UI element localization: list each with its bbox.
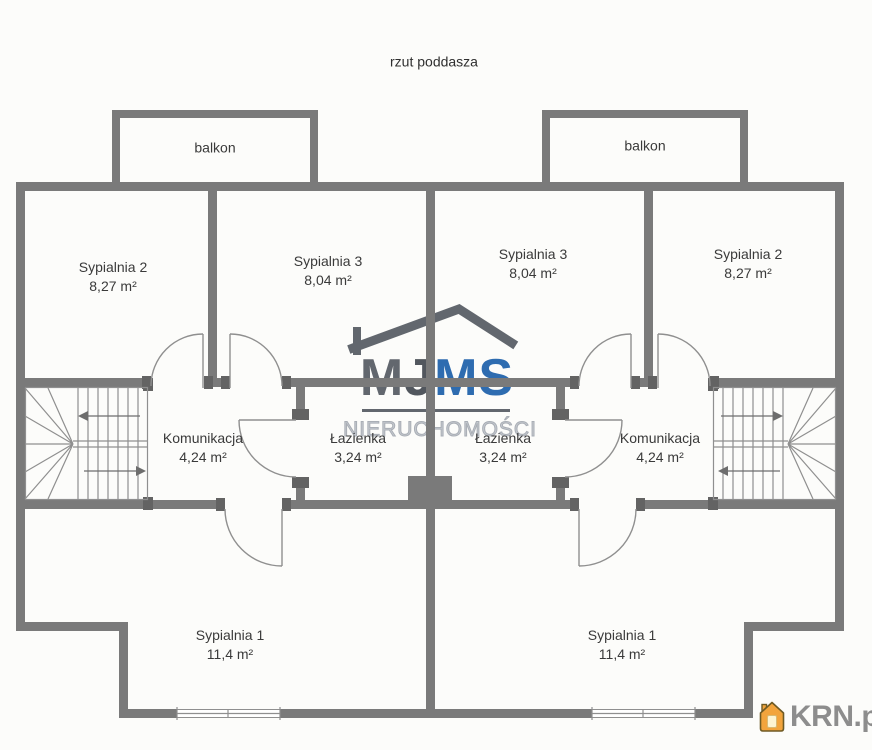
room-label-balcony-left: balkon bbox=[194, 139, 235, 158]
plan-title: rzut poddasza bbox=[390, 53, 478, 72]
wall bbox=[16, 182, 844, 191]
balcony-wall bbox=[740, 110, 748, 191]
room-name: Łazienka bbox=[475, 429, 531, 448]
room-name: Komunikacja bbox=[620, 429, 700, 448]
room-name: Sypialnia 3 bbox=[499, 245, 568, 264]
door-jamb bbox=[282, 498, 291, 511]
wall bbox=[644, 191, 653, 378]
wall bbox=[25, 378, 151, 387]
door-jamb bbox=[292, 409, 309, 420]
party-wall bbox=[426, 509, 435, 709]
wall bbox=[636, 500, 835, 509]
balcony-wall bbox=[112, 110, 120, 191]
wall bbox=[25, 500, 225, 509]
wall bbox=[282, 378, 426, 387]
door-jamb bbox=[636, 498, 645, 511]
door-jamb bbox=[708, 378, 718, 391]
staircase-left bbox=[25, 388, 148, 500]
room-name: Sypialnia 2 bbox=[714, 245, 783, 264]
room-label-bedroom1-left: Sypialnia 1 11,4 m² bbox=[196, 626, 265, 664]
door-jamb bbox=[570, 498, 579, 511]
balcony-wall bbox=[542, 110, 550, 191]
room-name: Komunikacja bbox=[163, 429, 243, 448]
room-label-bedroom2-left: Sypialnia 2 8,27 m² bbox=[79, 258, 148, 296]
room-label-hall-right: Komunikacja 4,24 m² bbox=[620, 429, 700, 467]
door-jamb bbox=[552, 477, 569, 488]
wall bbox=[119, 622, 128, 718]
balcony-wall bbox=[542, 110, 748, 118]
room-label-bedroom3-left: Sypialnia 3 8,04 m² bbox=[294, 252, 363, 290]
balcony-wall bbox=[310, 110, 318, 191]
door-jamb bbox=[708, 497, 718, 510]
room-name: Sypialnia 1 bbox=[588, 626, 657, 645]
room-label-bath-left: Łazienka 3,24 m² bbox=[330, 429, 386, 467]
krn-logo: KRN.pl bbox=[757, 700, 872, 734]
room-area: 11,4 m² bbox=[588, 645, 657, 664]
door-jamb bbox=[143, 378, 153, 391]
room-area: 8,27 m² bbox=[79, 277, 148, 296]
room-area: 3,24 m² bbox=[475, 448, 531, 467]
door-jamb bbox=[552, 409, 569, 420]
room-area: 8,04 m² bbox=[499, 264, 568, 283]
room-label-bath-right: Łazienka 3,24 m² bbox=[475, 429, 531, 467]
wall bbox=[710, 378, 835, 387]
wall bbox=[282, 500, 426, 509]
room-area: 3,24 m² bbox=[330, 448, 386, 467]
watermark-divider bbox=[362, 409, 510, 412]
room-area: 11,4 m² bbox=[196, 645, 265, 664]
room-area: 8,27 m² bbox=[714, 264, 783, 283]
room-name: Sypialnia 2 bbox=[79, 258, 148, 277]
room-label-hall-left: Komunikacja 4,24 m² bbox=[163, 429, 243, 467]
door-jamb bbox=[292, 477, 309, 488]
door-jamb bbox=[204, 376, 213, 389]
floor-plan: rzut poddasza MJMS NIERUCHOMOŚCI bbox=[0, 0, 872, 750]
party-wall bbox=[426, 191, 435, 478]
door-jamb bbox=[570, 376, 579, 389]
krn-logo-text: KRN.pl bbox=[790, 700, 872, 734]
wall bbox=[208, 191, 217, 378]
door-jamb bbox=[648, 376, 657, 389]
door-jamb bbox=[216, 498, 225, 511]
wall bbox=[835, 182, 844, 631]
room-label-bedroom3-right: Sypialnia 3 8,04 m² bbox=[499, 245, 568, 283]
room-label-bedroom2-right: Sypialnia 2 8,27 m² bbox=[714, 245, 783, 283]
wall bbox=[435, 500, 579, 509]
wall bbox=[435, 378, 579, 387]
door-jamb bbox=[282, 376, 291, 389]
wall bbox=[16, 622, 128, 631]
wall bbox=[119, 709, 753, 718]
door-jamb bbox=[221, 376, 230, 389]
room-area: 8,04 m² bbox=[294, 271, 363, 290]
wall bbox=[16, 182, 25, 631]
house-icon bbox=[757, 700, 787, 734]
room-name: Sypialnia 1 bbox=[196, 626, 265, 645]
wall bbox=[744, 622, 844, 631]
room-name: Łazienka bbox=[330, 429, 386, 448]
wall bbox=[744, 622, 753, 718]
door-jamb bbox=[631, 376, 640, 389]
room-name: Sypialnia 3 bbox=[294, 252, 363, 271]
room-area: 4,24 m² bbox=[163, 448, 243, 467]
room-area: 4,24 m² bbox=[620, 448, 700, 467]
staircase-right bbox=[713, 388, 836, 500]
room-label-bedroom1-right: Sypialnia 1 11,4 m² bbox=[588, 626, 657, 664]
door-jamb bbox=[143, 497, 153, 510]
room-label-balcony-right: balkon bbox=[624, 137, 665, 156]
balcony-wall bbox=[112, 110, 318, 118]
